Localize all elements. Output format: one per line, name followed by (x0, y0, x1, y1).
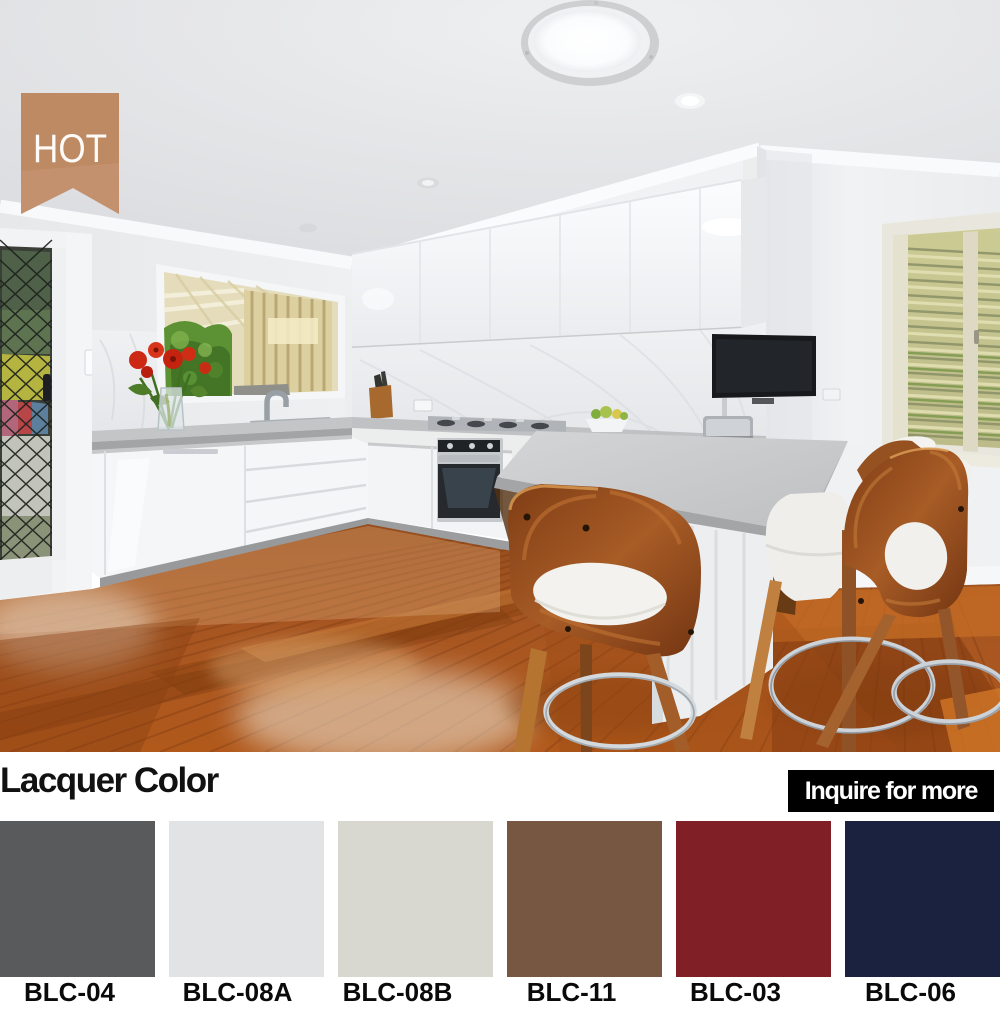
svg-text:HOT: HOT (33, 127, 107, 171)
